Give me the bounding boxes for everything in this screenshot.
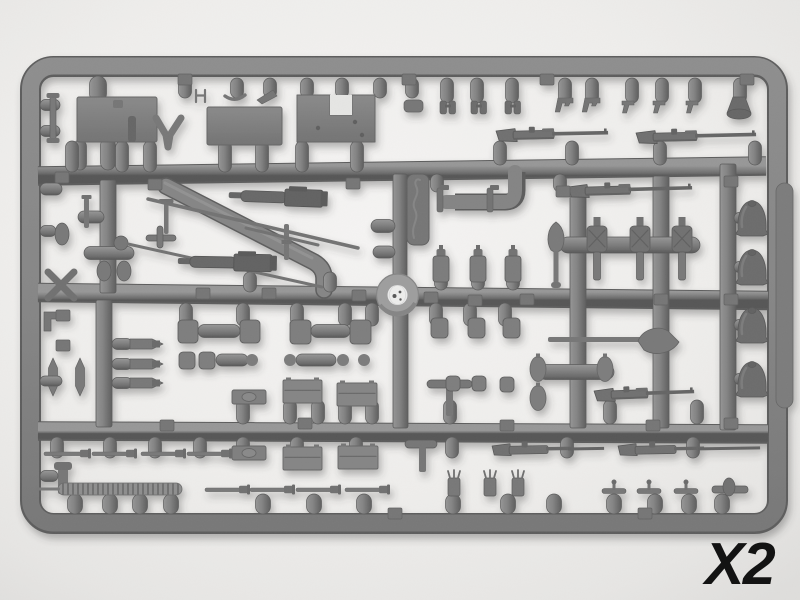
- svg-text:X2: X2: [702, 531, 776, 597]
